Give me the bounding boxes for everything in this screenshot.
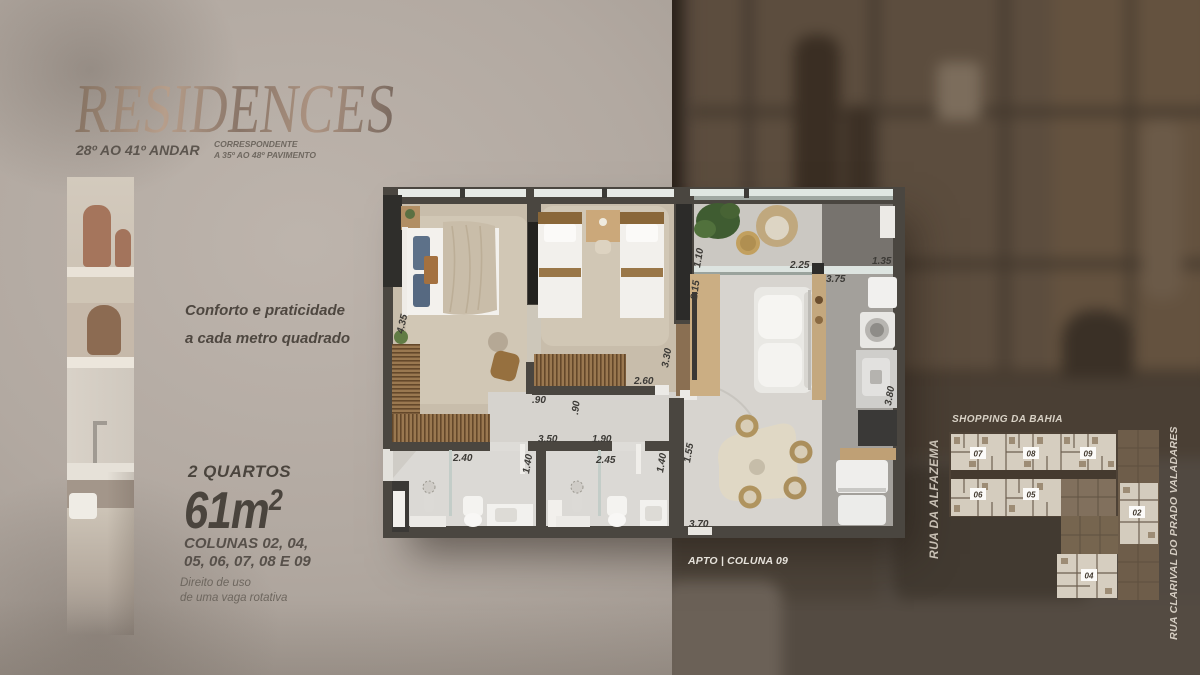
svg-text:05: 05 xyxy=(1027,491,1036,500)
svg-text:04: 04 xyxy=(1085,572,1094,581)
svg-text:07: 07 xyxy=(974,450,983,459)
svg-text:2.40: 2.40 xyxy=(452,453,473,464)
svg-text:1.90: 1.90 xyxy=(592,434,612,445)
svg-text:1.35: 1.35 xyxy=(872,256,892,267)
svg-text:3.75: 3.75 xyxy=(826,274,846,285)
svg-text:2.60: 2.60 xyxy=(633,376,654,387)
svg-text:3.70: 3.70 xyxy=(689,519,709,530)
svg-text:RESIDENCES: RESIDENCES xyxy=(72,70,400,142)
svg-text:.90: .90 xyxy=(570,400,583,416)
svg-text:2.45: 2.45 xyxy=(595,455,616,466)
svg-text:3.50: 3.50 xyxy=(538,434,558,445)
svg-text:02: 02 xyxy=(1133,509,1142,518)
svg-text:2.25: 2.25 xyxy=(789,260,810,271)
svg-text:09: 09 xyxy=(1084,450,1093,459)
svg-text:08: 08 xyxy=(1027,450,1036,459)
svg-text:.90: .90 xyxy=(532,395,546,406)
svg-text:06: 06 xyxy=(974,491,983,500)
